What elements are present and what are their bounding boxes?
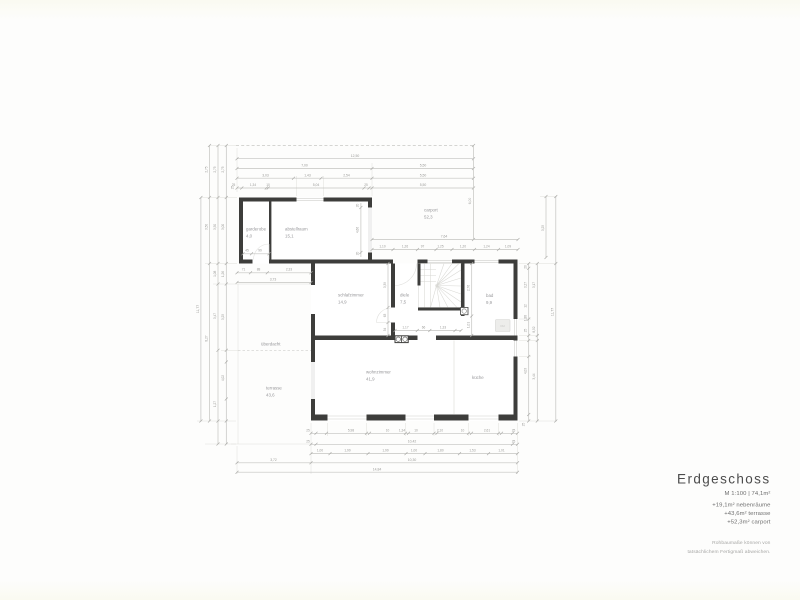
svg-text:25: 25 — [231, 186, 235, 190]
svg-text:9,9: 9,9 — [486, 300, 493, 305]
svg-text:+52,3m² carport: +52,3m² carport — [727, 519, 771, 525]
svg-text:+19,1m² nebenräume: +19,1m² nebenräume — [712, 503, 771, 509]
svg-text:2,61: 2,61 — [484, 428, 490, 432]
svg-text:15,1: 15,1 — [285, 234, 294, 239]
svg-text:1,09: 1,09 — [505, 245, 511, 249]
svg-text:5,50: 5,50 — [420, 164, 427, 168]
svg-text:71: 71 — [242, 268, 246, 272]
svg-text:25: 25 — [512, 439, 516, 443]
svg-text:1,33: 1,33 — [440, 325, 446, 329]
svg-text:3,39: 3,39 — [383, 282, 387, 288]
svg-text:2,75: 2,75 — [213, 166, 217, 172]
svg-text:schlafzimmer: schlafzimmer — [338, 293, 364, 298]
svg-text:Erdgeschoss: Erdgeschoss — [677, 472, 770, 487]
svg-text:1,34: 1,34 — [250, 183, 256, 187]
svg-text:41,9: 41,9 — [366, 377, 375, 382]
svg-text:10: 10 — [461, 428, 465, 432]
svg-text:10,30: 10,30 — [408, 458, 417, 462]
svg-text:25: 25 — [306, 439, 310, 443]
svg-text:7,64: 7,64 — [441, 234, 448, 238]
svg-text:5,50: 5,50 — [420, 183, 427, 187]
svg-text:20: 20 — [355, 252, 359, 256]
svg-text:7,5: 7,5 — [400, 300, 407, 305]
svg-text:14,9: 14,9 — [338, 300, 347, 305]
svg-text:11,77: 11,77 — [196, 305, 200, 313]
svg-text:3,50: 3,50 — [204, 224, 208, 230]
svg-text:küche: küche — [472, 375, 484, 380]
svg-text:43,6: 43,6 — [266, 393, 275, 398]
svg-text:1,24: 1,24 — [483, 245, 489, 249]
svg-text:carport: carport — [424, 208, 438, 213]
svg-text:10: 10 — [266, 183, 270, 187]
svg-text:1,00: 1,00 — [317, 449, 323, 453]
svg-text:1,01: 1,01 — [498, 449, 504, 453]
svg-text:1,80: 1,80 — [437, 449, 443, 453]
svg-text:5,50: 5,50 — [420, 173, 427, 177]
svg-text:2,33: 2,33 — [286, 268, 292, 272]
svg-text:3,27: 3,27 — [523, 282, 527, 288]
svg-text:1,25: 1,25 — [437, 245, 443, 249]
svg-text:3,03: 3,03 — [262, 173, 269, 177]
svg-text:3,47: 3,47 — [213, 313, 217, 319]
svg-text:25: 25 — [523, 329, 527, 333]
svg-text:Rohbaumaße können von: Rohbaumaße können von — [712, 540, 771, 546]
svg-text:1,27: 1,27 — [213, 401, 217, 407]
svg-text:3,17: 3,17 — [532, 282, 536, 288]
svg-text:8,52: 8,52 — [532, 326, 536, 332]
svg-text:10: 10 — [386, 428, 390, 432]
svg-text:8,27: 8,27 — [204, 335, 208, 341]
svg-text:5,04: 5,04 — [313, 183, 320, 187]
svg-text:3,50: 3,50 — [213, 224, 217, 230]
svg-text:1,10: 1,10 — [379, 245, 385, 249]
svg-text:4,03: 4,03 — [523, 368, 527, 374]
svg-text:2,54: 2,54 — [343, 173, 350, 177]
svg-text:11,77: 11,77 — [551, 308, 555, 316]
svg-text:63: 63 — [383, 314, 387, 318]
svg-text:1,34: 1,34 — [399, 428, 405, 432]
svg-text:5,98: 5,98 — [348, 428, 354, 432]
svg-text:4,02: 4,02 — [221, 375, 225, 381]
svg-text:10: 10 — [414, 428, 418, 432]
svg-text:66: 66 — [422, 325, 426, 329]
svg-text:20: 20 — [523, 265, 527, 269]
svg-text:3,72: 3,72 — [270, 458, 277, 462]
svg-text:2,76: 2,76 — [467, 285, 471, 291]
svg-text:25: 25 — [521, 423, 525, 427]
svg-text:1,01: 1,01 — [467, 322, 471, 328]
svg-text:M 1:100 | 74,1m²: M 1:100 | 74,1m² — [724, 491, 770, 497]
svg-text:wohnzimmer: wohnzimmer — [366, 370, 391, 375]
svg-text:bad: bad — [486, 293, 494, 298]
svg-text:DU: DU — [501, 324, 505, 328]
svg-text:3,44: 3,44 — [532, 373, 536, 379]
svg-text:+43,6m² terrasse: +43,6m² terrasse — [724, 511, 771, 517]
svg-text:terrasse: terrasse — [266, 386, 282, 391]
svg-text:3,25: 3,25 — [541, 225, 545, 231]
svg-text:54: 54 — [383, 328, 387, 332]
svg-text:10,42: 10,42 — [408, 439, 417, 443]
svg-text:3,73: 3,73 — [270, 277, 277, 281]
svg-text:88: 88 — [257, 268, 261, 272]
svg-text:tatsächlichem Fertigmaß abweic: tatsächlichem Fertigmaß abweichen. — [687, 549, 770, 555]
svg-text:52,3: 52,3 — [424, 215, 433, 220]
svg-text:4,0: 4,0 — [246, 234, 253, 239]
svg-text:1,26: 1,26 — [221, 271, 225, 277]
svg-text:1,99: 1,99 — [382, 449, 388, 453]
svg-text:1,99: 1,99 — [344, 449, 350, 453]
svg-text:1,00: 1,00 — [411, 449, 417, 453]
svg-text:1,53: 1,53 — [469, 449, 475, 453]
svg-text:12: 12 — [523, 304, 527, 308]
svg-text:1,17: 1,17 — [402, 325, 408, 329]
svg-text:1,26: 1,26 — [402, 245, 408, 249]
svg-text:25: 25 — [364, 183, 368, 187]
svg-text:1,88: 1,88 — [523, 315, 527, 321]
svg-text:20: 20 — [355, 204, 359, 208]
svg-text:6,00: 6,00 — [468, 198, 472, 205]
svg-text:2,10: 2,10 — [437, 428, 443, 432]
svg-text:25: 25 — [306, 428, 310, 432]
svg-text:4,66: 4,66 — [355, 227, 359, 233]
svg-text:diele: diele — [400, 293, 410, 298]
svg-text:1,20: 1,20 — [460, 245, 466, 249]
svg-text:2,75: 2,75 — [221, 166, 225, 172]
svg-text:2,75: 2,75 — [204, 166, 208, 172]
svg-text:45: 45 — [245, 249, 249, 253]
svg-text:garderobe: garderobe — [246, 227, 267, 232]
svg-text:12,50: 12,50 — [351, 154, 360, 158]
svg-text:7,00: 7,00 — [301, 164, 308, 168]
svg-text:überdacht: überdacht — [261, 342, 281, 347]
svg-text:99: 99 — [258, 249, 262, 253]
svg-text:97: 97 — [421, 245, 425, 249]
svg-text:3,00: 3,00 — [221, 224, 225, 230]
svg-text:abstellraum: abstellraum — [285, 227, 308, 232]
svg-text:14,84: 14,84 — [373, 467, 382, 471]
svg-text:1,08: 1,08 — [213, 270, 217, 276]
svg-text:1,43: 1,43 — [304, 173, 311, 177]
svg-text:25: 25 — [512, 428, 516, 432]
svg-text:3,25: 3,25 — [221, 314, 225, 320]
